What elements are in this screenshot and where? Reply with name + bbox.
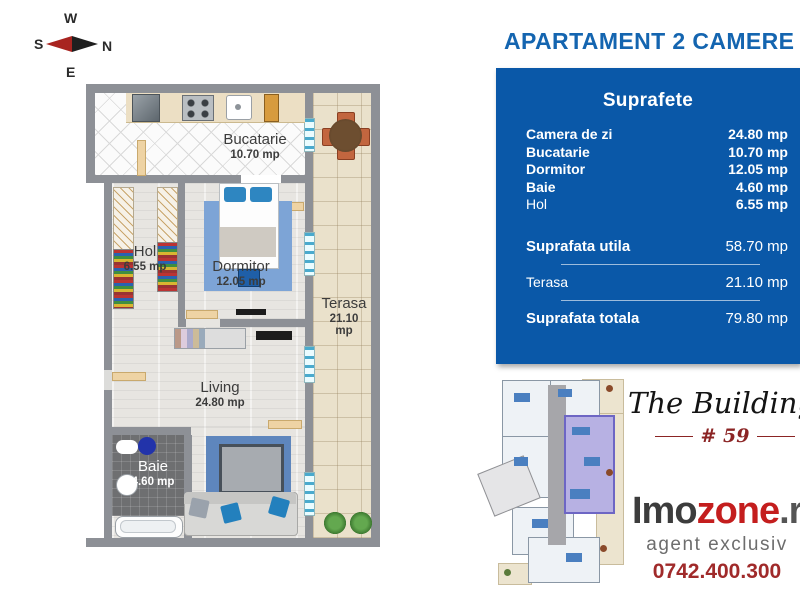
bookshelf-icon: [174, 328, 246, 349]
building-script-logo: The Building: [622, 386, 800, 420]
living-window: [304, 346, 315, 383]
surface-row-bucatarie: Bucatarie 10.70 mp: [496, 144, 800, 162]
bathtub-inner: [120, 520, 176, 533]
tv-icon: [219, 444, 284, 494]
mini-furniture: [514, 393, 530, 402]
surface-total-utila: Suprafata utila 58.70 mp: [496, 238, 800, 255]
dash-line: [655, 436, 693, 437]
bedroom-window: [304, 232, 315, 276]
mini-furniture: [570, 489, 590, 499]
wall-left-upper: [86, 84, 95, 183]
mini-furniture: [514, 457, 528, 466]
toilet-icon: [116, 440, 138, 454]
entrance-opening: [104, 370, 112, 390]
building-number: # 59: [640, 425, 800, 447]
shelf: [186, 310, 218, 319]
shelf: [112, 372, 146, 381]
surface-total-totala: Suprafata totala 79.80 mp: [496, 310, 800, 327]
desk-icon: [236, 309, 266, 315]
mini-apartment: [502, 380, 552, 438]
blanket: [220, 227, 276, 257]
wardrobe-icon: [157, 187, 178, 244]
sink-drain: [235, 104, 241, 110]
wall-top: [86, 84, 380, 93]
stove-icon: [182, 95, 214, 121]
surface-row-dormitor: Dormitor 12.05 mp: [496, 161, 800, 179]
mini-furniture: [566, 553, 582, 562]
phone-number: 0742.400.300: [634, 560, 800, 584]
room-label-hol: Hol 6.55 mp: [124, 244, 167, 273]
mini-plant-icon: [600, 545, 607, 552]
mini-furniture: [558, 389, 572, 397]
dash-line: [757, 436, 795, 437]
compass-north-label: N: [102, 38, 112, 54]
compass-needle-icon: [46, 36, 72, 52]
wall-bath-top: [104, 427, 191, 435]
surface-total-terasa: Terasa 21.10 mp: [496, 274, 800, 291]
room-label-living: Living 24.80 mp: [195, 380, 244, 409]
pillow: [250, 187, 272, 202]
mini-plant-icon: [606, 385, 613, 392]
toilet-tank: [138, 437, 156, 455]
terrace-table-icon: [329, 119, 362, 152]
kitchen-window: [304, 118, 315, 152]
wall-kitchen-bottom-left: [95, 175, 241, 183]
imozone-logo: Imozone.r: [632, 492, 800, 530]
fridge-icon: [264, 94, 279, 122]
compass-east-label: E: [66, 64, 75, 80]
surfaces-panel: Suprafete Camera de zi 24.80 mp Bucatari…: [496, 68, 800, 364]
surfaces-panel-header: Suprafete: [496, 90, 800, 112]
room-label-terasa: Terasa 21.10 mp: [321, 296, 366, 338]
mini-furniture: [532, 519, 548, 528]
compass-south-label: S: [34, 36, 43, 52]
building-floorplate-thumbnail: [488, 377, 625, 585]
bedroom-door-opening: [186, 319, 220, 327]
mini-plant-icon: [606, 469, 613, 476]
wall-left-lower: [104, 183, 112, 370]
pillow: [224, 187, 246, 202]
compass-needle-icon: [72, 36, 98, 52]
wall-kitchen-bottom-right: [281, 175, 313, 183]
room-label-dormitor: Dormitor 12.05 mp: [212, 259, 270, 288]
mini-plant-icon: [504, 569, 511, 576]
divider: [561, 264, 760, 265]
divider: [561, 300, 760, 301]
flyer-canvas: { "compass": { "top": "W", "left": "S", …: [0, 0, 800, 600]
compass-west-label: W: [64, 10, 77, 26]
tv-console-icon: [256, 331, 292, 340]
plant-icon: [324, 512, 346, 534]
mini-terrace: [498, 563, 532, 585]
plant-icon: [350, 512, 372, 534]
radiator: [268, 420, 302, 429]
wall-bottom: [86, 538, 380, 547]
steel-cabinet-icon: [132, 94, 160, 122]
room-label-baie: Baie 4.60 mp: [132, 459, 175, 488]
wall-hall-bedroom: [178, 183, 185, 319]
compass: W S N E: [30, 8, 120, 80]
page-title: APARTAMENT 2 CAMERE: [504, 28, 800, 55]
wall-right: [371, 84, 380, 547]
pillow: [188, 497, 209, 518]
room-label-bucatarie: Bucatarie 10.70 mp: [223, 132, 286, 161]
surface-row-camera-de-zi: Camera de zi 24.80 mp: [496, 126, 800, 144]
surface-row-baie: Baie 4.60 mp: [496, 179, 800, 197]
wall-left-lower2: [104, 390, 112, 547]
mini-furniture: [572, 427, 590, 435]
surface-row-hol: Hol 6.55 mp: [496, 196, 800, 214]
apartment-floorplan: Bucatarie 10.70 mp Hol 6.55 mp Dormitor …: [86, 84, 380, 547]
wardrobe-icon: [113, 187, 134, 251]
agent-tagline: agent exclusiv: [634, 534, 800, 556]
living-door-window: [304, 472, 315, 516]
door-leaf: [137, 140, 146, 176]
mini-furniture: [584, 457, 600, 466]
